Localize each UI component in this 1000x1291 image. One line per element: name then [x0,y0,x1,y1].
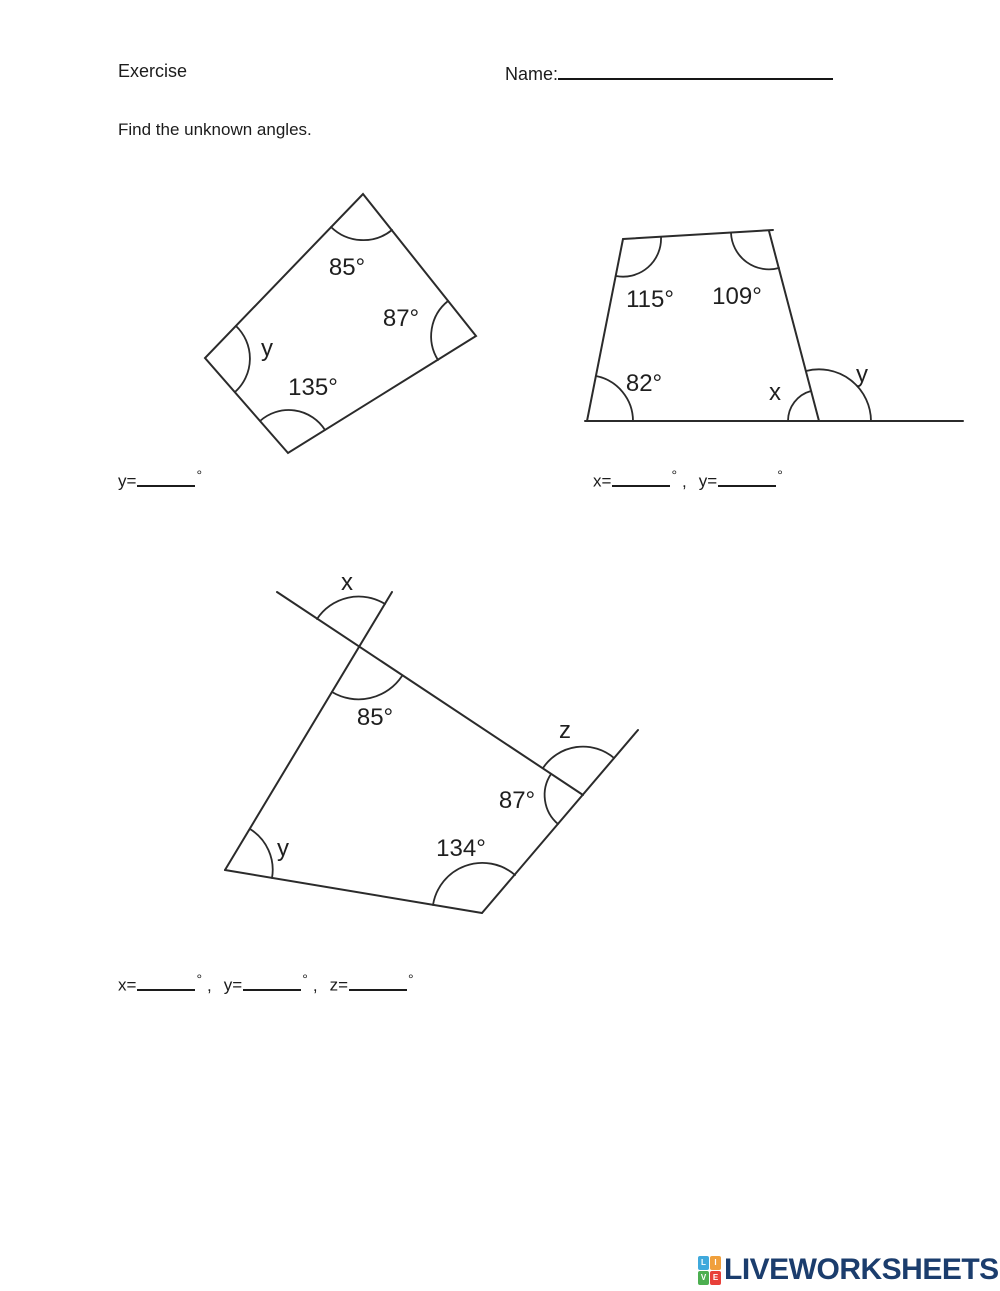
answer-1-y-degree: ° [196,467,202,483]
quad1-outline [205,194,476,453]
quad3-arc-87-interior [545,774,558,824]
answer-3-x-degree: ° [196,971,202,987]
quad1-arc-left [235,326,250,392]
logo-cell-i: I [710,1256,721,1270]
quad3-label-z: z [559,717,571,744]
answer-blank-3-z[interactable] [349,974,407,991]
quad2-label-82: 82° [626,370,662,397]
worksheet-page: Exercise Name: Find the unknown angles. … [0,0,1000,1291]
quad3-arc-y-interior [250,829,273,878]
quad2-top-edge [623,230,773,239]
answer-3-y-prefix: y= [224,976,242,995]
quad2-label-x: x [769,379,781,406]
quad2-label-y: y [856,361,868,388]
logo-cell-v: V [698,1271,709,1285]
quad2-left-edge [587,239,623,421]
quad1-arc-right [431,301,448,360]
quad3-label-85: 85° [357,704,393,731]
quad3-line-topvertex-to-z [277,592,583,795]
quad3-label-134: 134° [436,835,486,862]
quad2-label-115: 115° [626,286,674,313]
answer-3-x-prefix: x= [118,976,136,995]
answer-2-separator: , [682,472,687,491]
liveworksheets-branding: L I V E LIVEWORKSHEETS [698,1253,999,1287]
quad1-label-135: 135° [288,374,338,401]
figures-canvas: 85° 87° y 135° 115° 109° 82° x y [0,0,1000,1291]
liveworksheets-wordmark: LIVEWORKSHEETS [724,1253,999,1287]
figure-1-quadrilateral: 85° 87° y 135° [205,194,476,453]
quad3-arc-85-interior [332,676,402,699]
answer-row-2: x=°,y=° [593,468,783,492]
answer-blank-2-x[interactable] [612,470,670,487]
answer-3-z-prefix: z= [330,976,348,995]
logo-cell-l: L [698,1256,709,1270]
quad1-label-y: y [261,335,273,362]
answer-2-y-prefix: y= [699,472,717,491]
logo-cell-e: E [710,1271,721,1285]
quad1-arc-top [331,227,392,240]
answer-2-x-degree: ° [671,467,677,483]
quad3-label-x: x [341,569,353,596]
answer-row-1: y=° [118,468,202,492]
quad3-arc-134-interior [433,863,515,905]
answer-row-3: x=°,y=°,z=° [118,972,414,996]
quad1-label-85: 85° [329,254,365,281]
quad1-arc-bottom [260,410,325,430]
answer-blank-3-x[interactable] [137,974,195,991]
quad3-arc-z-exterior [543,747,614,768]
quad3-bottom-edge [225,870,482,913]
answer-3-z-degree: ° [408,971,414,987]
quad2-label-109: 109° [712,283,762,310]
answer-3-separator-2: , [313,976,318,995]
quad3-label-y: y [277,835,289,862]
answer-1-y-prefix: y= [118,472,136,491]
quad1-label-87: 87° [383,305,419,332]
answer-blank-1-y[interactable] [137,470,195,487]
quad3-label-87: 87° [499,787,535,814]
quad2-arc-x-interior [788,391,811,421]
figure-3-quadrilateral-extended: x 85° z 87° y 134° [225,569,638,913]
answer-2-x-prefix: x= [593,472,611,491]
answer-3-separator-1: , [207,976,212,995]
answer-2-y-degree: ° [777,467,783,483]
answer-blank-2-y[interactable] [718,470,776,487]
quad3-arc-x-exterior [317,597,385,619]
answer-blank-3-y[interactable] [243,974,301,991]
figure-2-trapezoid: 115° 109° 82° x y [585,230,963,421]
answer-3-y-degree: ° [302,971,308,987]
liveworksheets-logo-icon: L I V E [698,1256,721,1285]
